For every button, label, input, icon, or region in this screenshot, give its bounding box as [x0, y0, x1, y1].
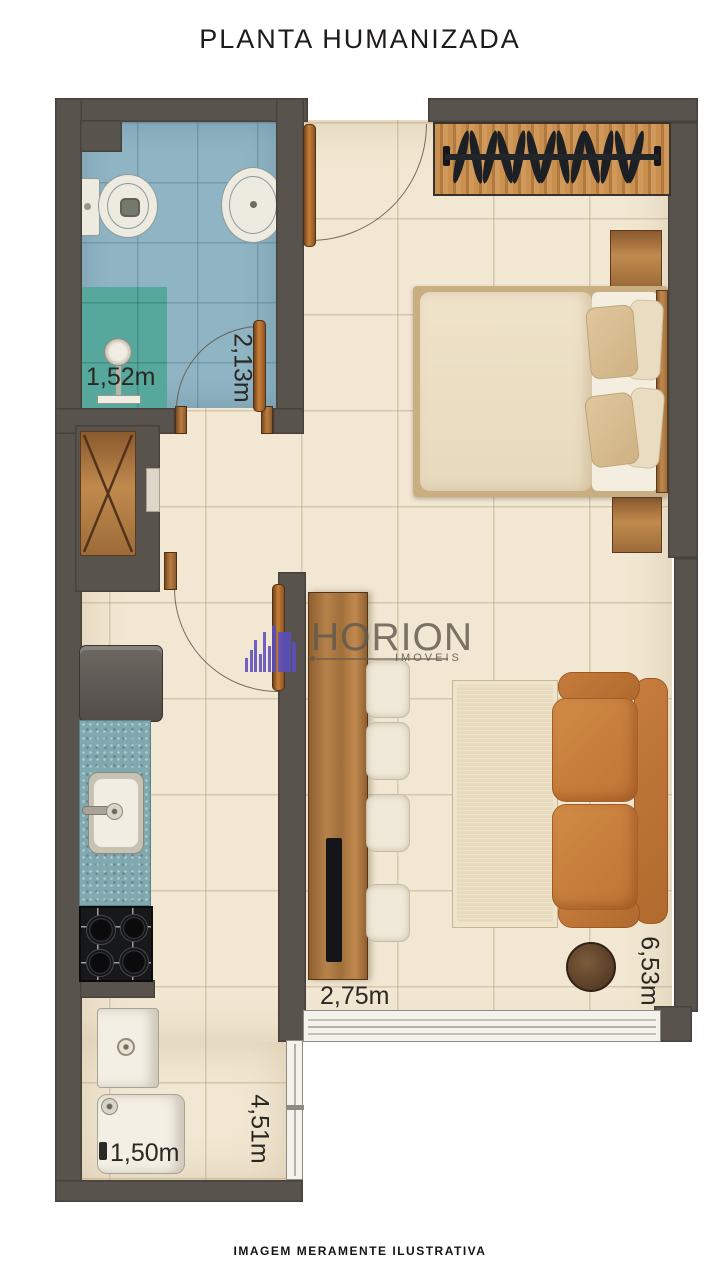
- side-table: [566, 942, 616, 992]
- window-mullion: [287, 1105, 304, 1110]
- sofa-back: [634, 678, 668, 924]
- wall-bathroom-bottom-right: [273, 408, 304, 434]
- sink-drain: [250, 201, 257, 208]
- stove-burner: [86, 915, 116, 945]
- toilet-flush-button: [84, 203, 91, 210]
- water-heater-cap: [117, 1038, 135, 1056]
- wall-bathroom-right: [276, 98, 304, 434]
- stove-burner: [119, 947, 149, 977]
- dim-living-length: 6,53m: [635, 936, 664, 1005]
- stove: [79, 906, 153, 982]
- bed-pillow: [584, 391, 640, 468]
- dim-bathroom-width: 1,52m: [86, 363, 155, 392]
- sofa-cushion: [552, 698, 638, 802]
- window-rail: [308, 1019, 656, 1021]
- dim-service-width: 1,50m: [110, 1139, 179, 1168]
- stove-burner: [120, 914, 148, 942]
- bed-duvet: [420, 292, 592, 491]
- fridge: [79, 645, 163, 722]
- living-room-window: [303, 1010, 661, 1042]
- window-rail: [294, 1044, 296, 1176]
- watermark-buildings-icon: [245, 624, 305, 672]
- wardrobe-hangers: [435, 124, 669, 194]
- faucet-knob: [106, 803, 123, 820]
- disclaimer-text: IMAGEM MERAMENTE ILUSTRATIVA: [0, 1244, 720, 1258]
- wall-right-lower: [674, 558, 698, 1012]
- wardrobe: [433, 122, 671, 196]
- tv: [326, 838, 342, 962]
- toilet-drain: [120, 198, 140, 217]
- chair: [366, 794, 410, 852]
- window-rail: [308, 1026, 656, 1028]
- washer-detergent-slot: [99, 1142, 107, 1160]
- floor-plan-page: PLANTA HUMANIZADA: [0, 0, 720, 1280]
- bed-pillow: [585, 304, 639, 380]
- wall-right-upper: [668, 122, 698, 558]
- rug: [452, 680, 558, 928]
- stove-burner: [86, 949, 114, 977]
- nightstand-bottom: [612, 497, 662, 553]
- dim-service-length: 4,51m: [245, 1094, 274, 1163]
- watermark: HORION IMOVEIS: [245, 610, 475, 676]
- watermark-dot: [310, 656, 315, 661]
- laundry-window: [286, 1040, 303, 1180]
- storage-cabinet: [80, 431, 136, 556]
- page-title: PLANTA HUMANIZADA: [0, 24, 720, 55]
- nightstand-top: [610, 230, 662, 287]
- dim-bathroom-length: 2,13m: [228, 333, 257, 402]
- sofa-cushion: [552, 804, 638, 910]
- shower-threshold: [97, 395, 141, 404]
- shower-head: [104, 338, 132, 366]
- shaft-niche: [146, 468, 160, 512]
- wall-kitchen-laundry-stub: [80, 980, 155, 998]
- watermark-tagline: IMOVEIS: [395, 652, 462, 664]
- chair: [366, 884, 410, 942]
- washer-dial: [101, 1098, 118, 1115]
- window-rail: [308, 1033, 656, 1035]
- cabinet-x-mark: [81, 432, 135, 555]
- entry-door-leaf: [303, 124, 316, 247]
- wall-bathroom-notch: [80, 120, 122, 152]
- wall-left: [55, 98, 82, 1202]
- wall-bottom: [55, 1180, 303, 1202]
- dim-living-width: 2,75m: [320, 982, 389, 1011]
- kitchen-door-jamb: [164, 552, 177, 590]
- chair: [366, 722, 410, 780]
- bathroom-door-jamb-left: [175, 406, 187, 434]
- wall-top-left: [55, 98, 308, 122]
- wall-top-right: [428, 98, 698, 122]
